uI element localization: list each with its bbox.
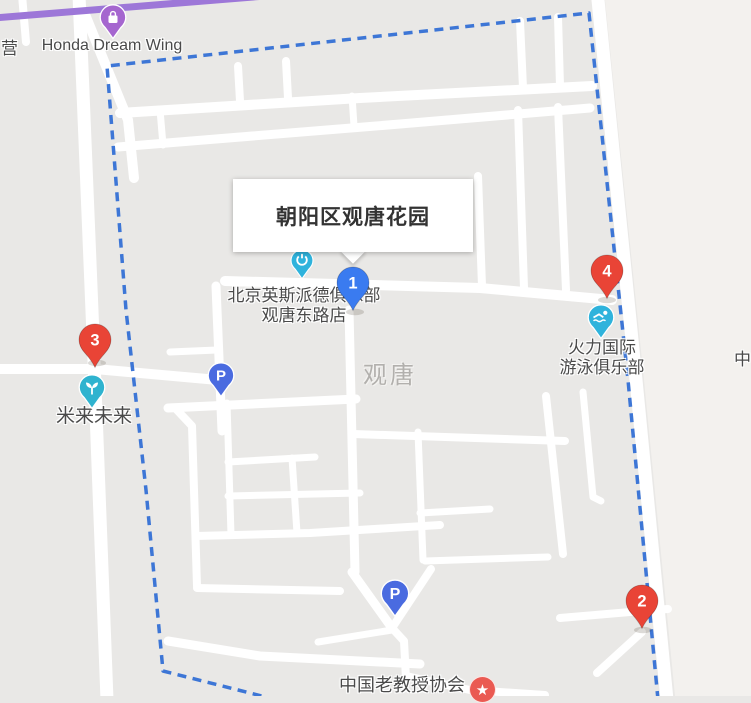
poi-label-professor[interactable]: 中国老教授协会 bbox=[339, 675, 465, 696]
fitness-icon bbox=[290, 249, 314, 280]
infobox[interactable]: 朝阳区观唐花园 bbox=[233, 179, 473, 252]
map-viewport[interactable]: { "infobox": { "title": "朝阳区观唐花园" }, "ma… bbox=[0, 0, 751, 696]
marker-pin-2[interactable]: 2 bbox=[625, 584, 659, 630]
svg-text:P: P bbox=[216, 368, 226, 385]
poi-parking-1[interactable]: P bbox=[207, 362, 235, 398]
marker-number: 3 bbox=[90, 332, 99, 350]
sprout-icon bbox=[78, 374, 106, 410]
poi-label-swim-line2: 游泳俱乐部 bbox=[560, 358, 645, 377]
shopping-bag-icon bbox=[99, 4, 127, 40]
poi-milai[interactable] bbox=[78, 374, 106, 410]
poi-label-swim-line1: 火力国际 bbox=[568, 338, 636, 357]
swimmer-icon bbox=[587, 304, 615, 340]
poi-club[interactable] bbox=[290, 249, 314, 280]
cutoff-label-left: 营 bbox=[1, 39, 18, 59]
poi-label-swim[interactable]: 火力国际 游泳俱乐部 bbox=[560, 338, 645, 378]
poi-swim[interactable] bbox=[587, 304, 615, 340]
marker-pin-4[interactable]: 4 bbox=[590, 254, 624, 300]
parking-icon: P bbox=[380, 579, 410, 618]
marker-pin-1[interactable]: 1 bbox=[336, 266, 370, 312]
poi-honda[interactable] bbox=[99, 4, 127, 40]
district-label: 观唐 bbox=[363, 362, 417, 390]
poi-label-club-line2: 观唐东路店 bbox=[262, 306, 347, 325]
cutoff-label-right: 中 bbox=[734, 350, 751, 370]
marker-number: 1 bbox=[348, 275, 357, 293]
parking-icon: P bbox=[207, 362, 235, 398]
marker-number: 4 bbox=[602, 263, 612, 281]
poi-parking-2[interactable]: P bbox=[380, 579, 410, 618]
marker-pin-3[interactable]: 3 bbox=[78, 323, 112, 369]
svg-text:P: P bbox=[390, 585, 401, 603]
poi-professor[interactable]: ★ bbox=[469, 676, 496, 703]
infobox-title: 朝阳区观唐花园 bbox=[276, 201, 430, 231]
marker-number: 2 bbox=[637, 593, 646, 611]
